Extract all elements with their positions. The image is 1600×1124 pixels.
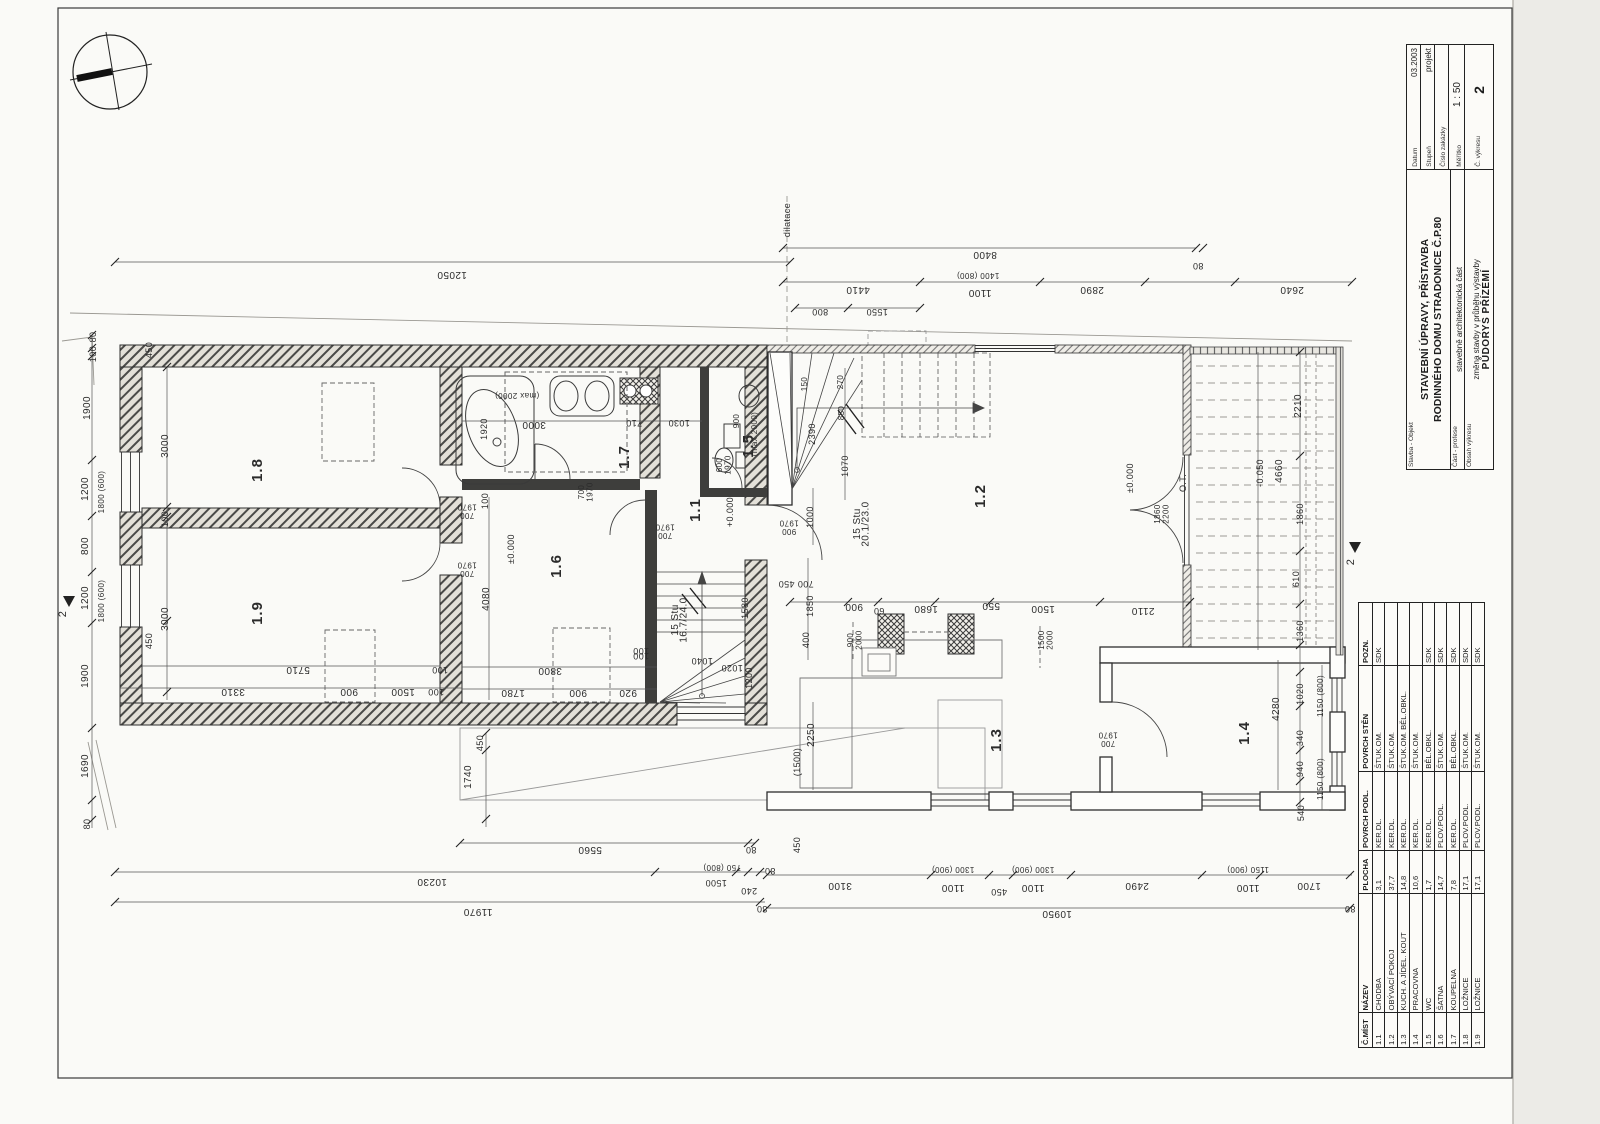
dimension-text: 850 bbox=[837, 406, 846, 421]
dimension-text: 4280 bbox=[1271, 697, 1282, 721]
title-block-scale: Měřítko 1 : 50 bbox=[1449, 45, 1466, 169]
dimension-text: 11970 bbox=[463, 906, 492, 917]
dimension-text: 1020 bbox=[721, 663, 743, 673]
obsah-value: změna stavby v průběhu výstavby bbox=[1472, 259, 1481, 380]
room-number-label: 1.6 bbox=[548, 554, 565, 578]
legend-cell: KOUPELNA bbox=[1447, 893, 1459, 1013]
legend-cell: SDK bbox=[1422, 603, 1434, 666]
legend-cell: SDK bbox=[1447, 603, 1459, 666]
legend-cell: ŠTUK.OM. bbox=[1472, 666, 1484, 772]
legend-cell: SDK bbox=[1434, 603, 1446, 666]
cast-value: stavebně architektonická část bbox=[1455, 267, 1464, 372]
project-title-line2: RODINNÉHO DOMU STRADONICE Č.P.80 bbox=[1432, 217, 1445, 422]
dimension-text: 2890 bbox=[1080, 284, 1104, 295]
legend-cell: KUCH. A JÍDEL. KOUT bbox=[1397, 893, 1409, 1013]
stupen-value: projekt bbox=[1424, 48, 1433, 72]
stair-existing bbox=[657, 572, 745, 703]
dimension-text: 750 (800) bbox=[703, 863, 741, 872]
dimension-text: 100 bbox=[480, 493, 490, 509]
dimension-text: 6001970 bbox=[715, 455, 733, 475]
legend-cell: LOŽNICE bbox=[1459, 893, 1471, 1013]
dimension-text: 10230 bbox=[417, 876, 447, 887]
dimension-text: 1150 (800) bbox=[1316, 675, 1325, 717]
legend-header-cell: NÁZEV bbox=[1359, 893, 1373, 1013]
legend-cell: ŠTUK.OM. bbox=[1410, 666, 1422, 772]
dimension-text: 1550 bbox=[866, 307, 888, 317]
dimension-text: 2210 bbox=[1293, 394, 1304, 418]
legend-cell: ŠATNA bbox=[1434, 893, 1446, 1013]
dimension-text: 900 bbox=[569, 687, 587, 698]
title-block-content: Obsah výkresu změna stavby v průběhu výs… bbox=[1465, 170, 1493, 469]
dimension-text: 450 bbox=[144, 342, 154, 358]
legend-row: 1.6ŠATNA14,7PLOV.PODL.ŠTUK.OM.SDK bbox=[1434, 603, 1446, 1048]
dimension-text: 1040 bbox=[691, 656, 713, 666]
dimension-text: 610 bbox=[1291, 571, 1301, 587]
dimension-text: 1030 bbox=[668, 418, 690, 428]
dimension-text: 1360 bbox=[1295, 620, 1305, 642]
legend-row: 1.8LOŽNICE17,1PLOV.PODL.ŠTUK.OM.SDK bbox=[1459, 603, 1471, 1048]
dimension-text: 1070 bbox=[840, 455, 850, 477]
dimension-text: 4080 bbox=[481, 587, 492, 611]
meritko-label: Měřítko bbox=[1456, 145, 1463, 167]
dimension-text: 540 bbox=[1296, 805, 1306, 821]
dimension-text: 3000 bbox=[160, 607, 171, 631]
dimension-text: 1200 bbox=[80, 477, 91, 501]
room-number-label: 1.7 bbox=[616, 445, 633, 469]
legend-cell: SDK bbox=[1472, 603, 1484, 666]
dimension-text: 9001970 bbox=[779, 519, 799, 537]
dimension-text: 1850 bbox=[805, 595, 815, 617]
legend-cell: 7,8 bbox=[1447, 850, 1459, 893]
room-number-label: 1.9 bbox=[249, 601, 266, 625]
dimension-text: 1800 (600) bbox=[97, 580, 106, 623]
dimension-text: 240 bbox=[741, 886, 757, 896]
dimension-text: 1200 bbox=[80, 586, 91, 610]
dimension-text: 9002000 bbox=[846, 630, 864, 650]
legend-cell bbox=[1410, 603, 1422, 666]
legend-cell: OBÝVACÍ POKOJ bbox=[1385, 893, 1397, 1013]
dimension-text: 2 bbox=[1345, 559, 1357, 566]
dimension-text: 450 bbox=[475, 735, 485, 751]
legend-header-cell: POZN. bbox=[1359, 603, 1373, 666]
legend-cell: WC bbox=[1422, 893, 1434, 1013]
dimension-text: 1020 bbox=[1295, 683, 1305, 705]
dimension-text: O.T. bbox=[1178, 474, 1188, 492]
dimension-text: 1920 bbox=[479, 418, 489, 440]
dimension-text: 3800 bbox=[538, 665, 562, 676]
title-block-stage: Stupeň projekt bbox=[1421, 45, 1435, 169]
legend-cell: 10,6 bbox=[1410, 850, 1422, 893]
dimension-text: 2490 bbox=[1125, 880, 1149, 891]
dimension-text: dilatace bbox=[782, 203, 792, 237]
room-legend-table: Č.MÍSTNÁZEVPLOCHAPOVRCH PODL.POVRCH STĚN… bbox=[1358, 602, 1485, 1048]
legend-cell: 1.1 bbox=[1373, 1013, 1385, 1048]
legend-cell: PLOV.PODL. bbox=[1459, 771, 1471, 850]
dimension-text: 4410 bbox=[846, 284, 870, 295]
legend-cell: 1.3 bbox=[1397, 1013, 1409, 1048]
dimension-text: 3000 bbox=[160, 434, 171, 458]
dimension-text: 1150 (800) bbox=[1316, 758, 1325, 800]
dimension-text: 80 bbox=[757, 904, 768, 914]
dimension-text: 940 bbox=[1295, 761, 1305, 777]
legend-cell: ŠTUK.OM. bbox=[1385, 666, 1397, 772]
legend-cell: SDK bbox=[1373, 603, 1385, 666]
dimension-text: 450 bbox=[991, 887, 1007, 897]
dimension-text: (max 2000) bbox=[750, 412, 759, 456]
legend-cell: 1.7 bbox=[1447, 1013, 1459, 1048]
legend-cell: 37,7 bbox=[1385, 850, 1397, 893]
datum-value: 03.2003 bbox=[1410, 48, 1419, 77]
dimension-text: ±0.000 bbox=[1125, 463, 1135, 493]
canopy-outline bbox=[460, 331, 985, 800]
legend-cell: BĚL.OBKL. bbox=[1422, 666, 1434, 772]
title-block-order-number: Číslo zakázky bbox=[1435, 45, 1449, 169]
terrace-decking bbox=[1196, 354, 1334, 647]
dimension-text: 5710 bbox=[286, 664, 310, 675]
dimension-text: 340 bbox=[1295, 730, 1305, 746]
room-number-label: 1.1 bbox=[687, 498, 704, 522]
dimension-text: 8400 bbox=[973, 249, 997, 260]
dimension-text: 550 bbox=[982, 600, 1000, 611]
dimension-text: 15 Stu16.7/24.0 bbox=[670, 597, 690, 642]
dimension-text: 5560 bbox=[578, 844, 602, 855]
legend-cell: 14,8 bbox=[1397, 850, 1409, 893]
dimension-text: 1200 bbox=[744, 667, 754, 689]
legend-row: 1.7KOUPELNA7,8KER.DL.BĚL.OBKL.SDK bbox=[1447, 603, 1459, 1048]
title-block-date: Datum 03.2003 bbox=[1407, 45, 1421, 169]
dimension-text: 1900 bbox=[80, 664, 91, 688]
dimension-text: 80 bbox=[82, 819, 92, 830]
dimension-text: 3310 bbox=[221, 686, 245, 697]
legend-cell: SDK bbox=[1459, 603, 1471, 666]
dimension-text: (max 2000) bbox=[495, 391, 539, 400]
dimension-text: -0.050 bbox=[1255, 459, 1265, 487]
section-markers bbox=[63, 542, 1361, 607]
dimension-text: 1800 (600) bbox=[97, 471, 106, 514]
dimension-text: 400 bbox=[801, 632, 811, 648]
drawing-sheet: 12050dilatace84008044101400 (800)1100289… bbox=[0, 0, 1600, 1124]
cislo-label: Číslo zakázky bbox=[1440, 127, 1447, 167]
dimension-text: 1100 bbox=[968, 287, 991, 298]
legend-cell: KER.DL. bbox=[1397, 771, 1409, 850]
room-legend: Č.MÍSTNÁZEVPLOCHAPOVRCH PODL.POVRCH STĚN… bbox=[1358, 602, 1485, 1048]
dimension-text: 100 bbox=[633, 651, 649, 661]
legend-cell: 1,7 bbox=[1422, 850, 1434, 893]
dimension-text: 1780 bbox=[501, 687, 525, 698]
dimension-text: 1150 (900) bbox=[1227, 865, 1269, 874]
dimension-text: 80 bbox=[88, 332, 98, 343]
stavba-label: Stavba - Objekt bbox=[1408, 422, 1415, 467]
dimension-text: 7001970 bbox=[577, 482, 595, 502]
dimension-text: 1690 bbox=[80, 754, 91, 778]
dimension-text: 920 bbox=[619, 687, 637, 698]
dimension-text: 100 bbox=[428, 687, 444, 697]
dimension-text: 3100 bbox=[828, 880, 852, 891]
dimension-text: (1500) bbox=[792, 748, 802, 776]
title-block-sheet-number: Č. výkresu 2 bbox=[1465, 45, 1493, 169]
project-title-line1: STAVEBNÍ ÚPRAVY, PŘÍSTAVBA bbox=[1419, 217, 1432, 422]
dimension-text: 7001970 bbox=[655, 523, 675, 541]
legend-cell: KER.DL. bbox=[1447, 771, 1459, 850]
dimension-text: 80 bbox=[765, 866, 776, 876]
legend-cell: 17,1 bbox=[1472, 850, 1484, 893]
legend-cell: PLOV.PODL. bbox=[1472, 771, 1484, 850]
dimension-text: 1900 bbox=[82, 396, 93, 420]
legend-cell: 1.4 bbox=[1410, 1013, 1422, 1048]
legend-cell: 14,7 bbox=[1434, 850, 1446, 893]
legend-cell: KER.DL. bbox=[1422, 771, 1434, 850]
dimension-text: 15 Stu20.1/23.0 bbox=[852, 501, 872, 546]
cvykresu-label: Č. výkresu bbox=[1475, 136, 1482, 167]
room-number-label: 1.2 bbox=[972, 484, 989, 508]
legend-cell: 1.6 bbox=[1434, 1013, 1446, 1048]
dimension-text: 4660 bbox=[1274, 459, 1285, 483]
furniture-outlines bbox=[322, 383, 1040, 788]
legend-cell: PLOV.PODL. bbox=[1434, 771, 1446, 850]
datum-label: Datum bbox=[1412, 148, 1419, 167]
legend-header-cell: PLOCHA bbox=[1359, 850, 1373, 893]
dimension-text: 18602200 bbox=[1153, 504, 1171, 524]
dimension-text: 7001970 bbox=[457, 503, 477, 521]
dimension-text: 2110 bbox=[1131, 605, 1154, 616]
dimension-text: 1860 bbox=[1295, 503, 1305, 525]
legend-cell: PRACOVNA bbox=[1410, 893, 1422, 1013]
dimension-text: 1300 (900) bbox=[932, 865, 975, 874]
legend-cell: 1.8 bbox=[1459, 1013, 1471, 1048]
dimension-text: 2250 bbox=[806, 723, 817, 747]
dimension-text: 800 bbox=[812, 307, 828, 317]
dimension-text: 100 bbox=[88, 346, 98, 362]
legend-cell: KER.DL. bbox=[1410, 771, 1422, 850]
dimension-text: 2 bbox=[57, 611, 69, 618]
dimension-text: 60 bbox=[874, 606, 885, 616]
obsah-label: Obsah výkresu bbox=[1466, 424, 1473, 467]
stupen-label: Stupeň bbox=[1426, 146, 1433, 167]
dimension-ticks bbox=[88, 244, 1356, 912]
dimension-text: 450 bbox=[144, 633, 154, 649]
room-number-label: 1.3 bbox=[988, 728, 1005, 752]
dimension-text: 2390 bbox=[807, 423, 817, 445]
legend-cell: 1.5 bbox=[1422, 1013, 1434, 1048]
dimension-text: 10950 bbox=[1042, 908, 1072, 919]
dimension-text: 100 bbox=[160, 511, 170, 527]
room-number-label: 1.4 bbox=[1236, 721, 1253, 745]
dimension-text: 7001970 bbox=[1098, 731, 1118, 749]
dimension-text: 1100 bbox=[941, 882, 964, 893]
legend-cell: ŠTUK.OM. bbox=[1434, 666, 1446, 772]
cast-label: Část - profese bbox=[1452, 426, 1459, 467]
legend-cell: ŠTUK.OM. bbox=[1373, 666, 1385, 772]
legend-cell: 17,1 bbox=[1459, 850, 1471, 893]
legend-row: 1.1CHODBA3,1KER.DL.ŠTUK.OM.SDK bbox=[1373, 603, 1385, 1048]
legend-row: 1.9LOŽNICE17,1PLOV.PODL.ŠTUK.OM.SDK bbox=[1472, 603, 1484, 1048]
north-arrow-icon bbox=[70, 32, 152, 110]
room-number-label: 1.8 bbox=[249, 458, 266, 482]
title-block-project: Stavba - Objekt STAVEBNÍ ÚPRAVY, PŘÍSTAV… bbox=[1407, 170, 1451, 469]
dimension-text: 80 bbox=[746, 845, 757, 855]
dimension-text: 12050 bbox=[437, 269, 467, 280]
stair-new bbox=[770, 353, 990, 489]
legend-cell: 1.2 bbox=[1385, 1013, 1397, 1048]
dimension-text: 80 bbox=[1193, 261, 1204, 271]
legend-header-cell: POVRCH STĚN bbox=[1359, 666, 1373, 772]
dimension-text: 1100 bbox=[1236, 882, 1259, 893]
dimension-text: 270 bbox=[836, 375, 845, 390]
dimension-text: 1500 bbox=[705, 878, 727, 888]
drawing-title: PŮDORYS PŘÍZEMÍ bbox=[1481, 269, 1492, 369]
dimension-text: 710 bbox=[626, 418, 642, 428]
dimension-text: 700 450 bbox=[778, 579, 813, 589]
dimension-text: 1700 bbox=[1297, 880, 1321, 891]
legend-cell: KER.DL. bbox=[1373, 771, 1385, 850]
dimension-text: 150 bbox=[800, 377, 809, 392]
title-block-profession: Část - profese stavebně architektonická … bbox=[1451, 170, 1465, 469]
meritko-value: 1 : 50 bbox=[1452, 82, 1463, 107]
legend-row: 1.3KUCH. A JÍDEL. KOUT14,8KER.DL.ŠTUK.OM… bbox=[1397, 603, 1409, 1048]
dimension-text: 2640 bbox=[1280, 284, 1304, 295]
dimension-text: 15002000 bbox=[1037, 630, 1055, 650]
dimension-text: +0.000 bbox=[725, 497, 735, 527]
legend-cell: 3,1 bbox=[1373, 850, 1385, 893]
legend-row: 1.5WC1,7KER.DL.BĚL.OBKL.SDK bbox=[1422, 603, 1434, 1048]
dimension-text: ±0.000 bbox=[506, 534, 516, 564]
dimension-text: 1740 bbox=[463, 765, 474, 789]
window-symbols bbox=[120, 346, 1342, 807]
dimension-text: 1400 (800) bbox=[957, 271, 1000, 280]
dimension-text: 1680 bbox=[914, 603, 938, 614]
dimension-text: 3000 bbox=[522, 419, 546, 430]
dimension-text: 1500 bbox=[1031, 603, 1055, 614]
legend-cell: CHODBA bbox=[1373, 893, 1385, 1013]
dimension-text: 100 bbox=[432, 665, 448, 675]
dimension-text: 7001970 bbox=[457, 561, 477, 579]
legend-cell: ŠTUK.OM. BĚL.OBKL. bbox=[1397, 666, 1409, 772]
legend-cell: KER.DL. bbox=[1385, 771, 1397, 850]
dimension-text: 1300 (900) bbox=[1012, 865, 1055, 874]
legend-cell: BĚL.OBKL. bbox=[1447, 666, 1459, 772]
dimension-text: 1000 bbox=[805, 506, 815, 528]
title-block: Stavba - Objekt STAVEBNÍ ÚPRAVY, PŘÍSTAV… bbox=[1406, 44, 1494, 470]
legend-cell: 1.9 bbox=[1472, 1013, 1484, 1048]
dimension-text: 900 bbox=[340, 686, 358, 697]
legend-cell bbox=[1397, 603, 1409, 666]
legend-row: 1.4PRACOVNA10,6KER.DL.ŠTUK.OM. bbox=[1410, 603, 1422, 1048]
legend-cell bbox=[1385, 603, 1397, 666]
dimension-text: 900 bbox=[732, 414, 741, 429]
sheet-number: 2 bbox=[1471, 86, 1487, 94]
dimension-text: 1500 bbox=[391, 686, 415, 697]
legend-header-cell: Č.MÍST bbox=[1359, 1013, 1373, 1048]
bathroom-fixtures bbox=[456, 372, 759, 484]
dimension-text: 450 bbox=[792, 837, 802, 853]
legend-header-cell: POVRCH PODL. bbox=[1359, 771, 1373, 850]
dimension-text: 1100 bbox=[1021, 882, 1044, 893]
legend-cell: ŠTUK.OM. bbox=[1459, 666, 1471, 772]
legend-cell: LOŽNICE bbox=[1472, 893, 1484, 1013]
dimension-text: 80 bbox=[1345, 904, 1356, 914]
legend-row: 1.2OBÝVACÍ POKOJ37,7KER.DL.ŠTUK.OM. bbox=[1385, 603, 1397, 1048]
dimension-annotations: 12050dilatace84008044101400 (800)1100289… bbox=[57, 203, 1357, 919]
dimension-text: 1580 bbox=[740, 597, 750, 619]
dimension-text: 900 bbox=[845, 601, 863, 612]
dimension-text: 800 bbox=[80, 537, 91, 555]
